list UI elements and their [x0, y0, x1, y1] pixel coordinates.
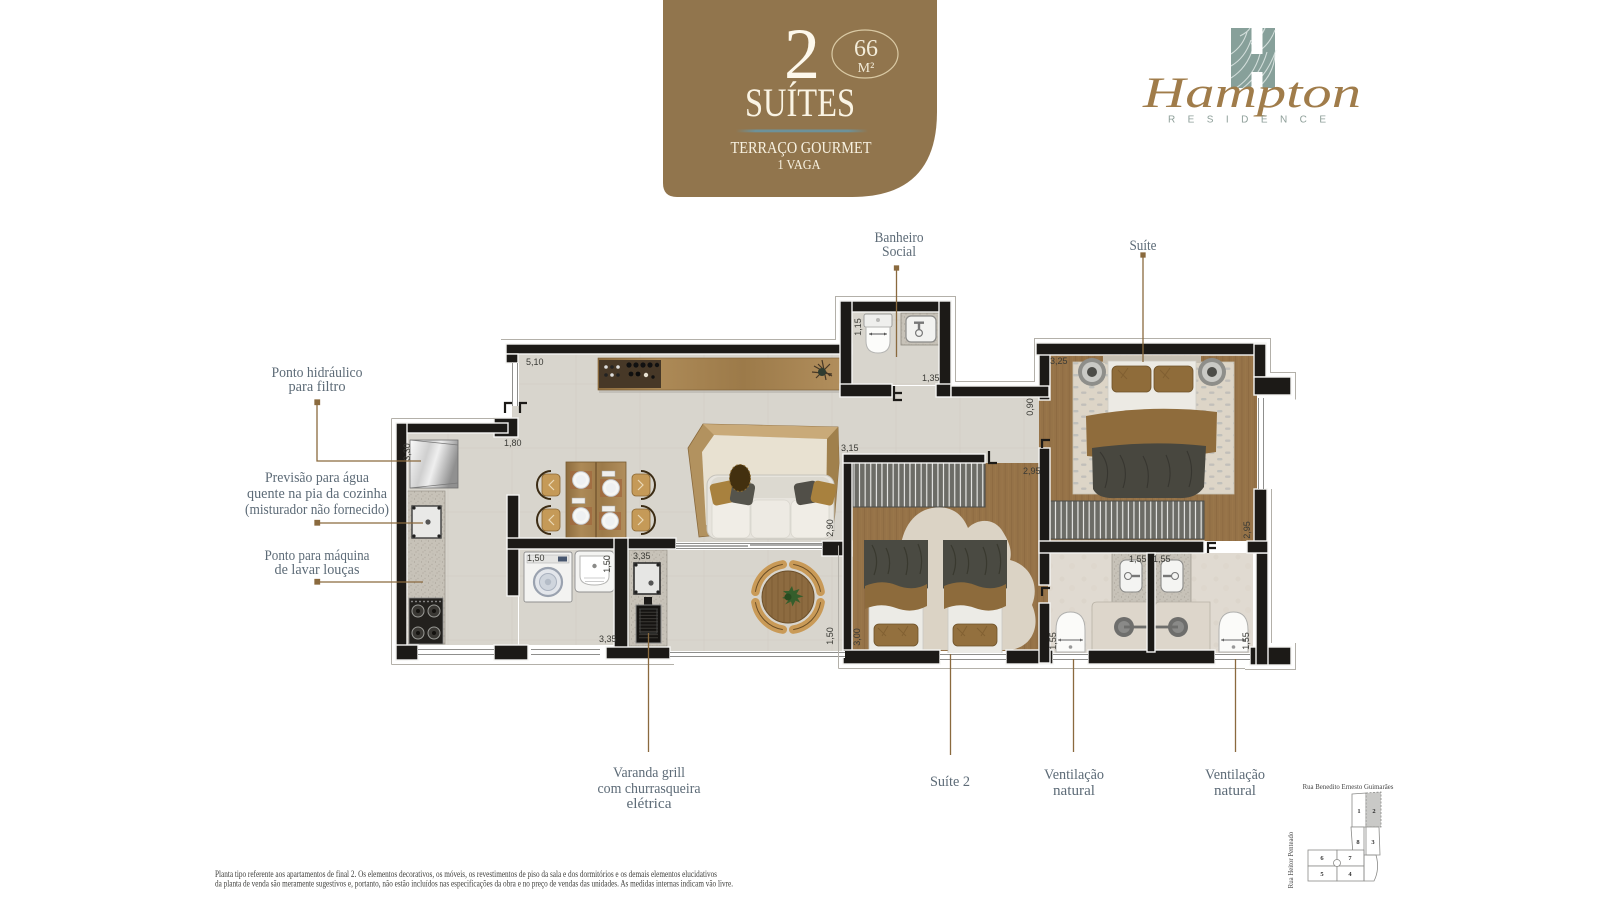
svg-text:1,55: 1,55	[1129, 554, 1147, 564]
svg-text:1,55: 1,55	[1048, 632, 1058, 650]
svg-text:natural: natural	[1053, 783, 1095, 799]
svg-text:2: 2	[1372, 808, 1375, 815]
svg-text:Suíte: Suíte	[1130, 238, 1157, 254]
svg-text:elétrica: elétrica	[627, 796, 672, 812]
svg-text:3,35: 3,35	[633, 551, 651, 561]
svg-text:2,90: 2,90	[825, 519, 835, 537]
svg-text:2,95: 2,95	[1242, 521, 1252, 539]
svg-text:2,95: 2,95	[1023, 466, 1041, 476]
svg-text:3,15: 3,15	[841, 443, 859, 453]
svg-text:Social: Social	[882, 244, 916, 260]
svg-text:1,50: 1,50	[602, 555, 612, 573]
svg-text:SUÍTES: SUÍTES	[745, 80, 855, 125]
svg-text:3,25: 3,25	[1050, 356, 1068, 366]
svg-text:0,90: 0,90	[1025, 398, 1035, 416]
svg-text:(misturador não fornecido): (misturador não fornecido)	[245, 502, 389, 518]
svg-text:Planta tipo referente aos apar: Planta tipo referente aos apartamentos d…	[215, 869, 717, 880]
svg-text:TERRAÇO GOURMET: TERRAÇO GOURMET	[731, 138, 873, 157]
svg-text:3,30: 3,30	[402, 443, 412, 461]
svg-text:Hampton: Hampton	[1142, 70, 1361, 117]
svg-text:1,15: 1,15	[853, 318, 863, 336]
svg-text:Varanda grill: Varanda grill	[613, 765, 685, 781]
svg-text:Rua Benedito Ernesto Guimarães: Rua Benedito Ernesto Guimarães	[1303, 784, 1394, 791]
svg-text:RESIDENCE: RESIDENCE	[1168, 115, 1326, 126]
svg-text:1,50: 1,50	[825, 627, 835, 645]
svg-text:1,55: 1,55	[1153, 554, 1171, 564]
svg-text:1,35: 1,35	[922, 373, 940, 383]
svg-text:quente na pia da cozinha: quente na pia da cozinha	[247, 486, 387, 502]
svg-text:5,10: 5,10	[526, 357, 544, 367]
svg-text:1 VAGA: 1 VAGA	[778, 157, 821, 172]
svg-text:Suíte 2: Suíte 2	[930, 774, 970, 790]
svg-text:M²: M²	[858, 61, 875, 76]
svg-text:Previsão para água: Previsão para água	[265, 470, 369, 486]
svg-text:3,35: 3,35	[599, 634, 617, 644]
svg-text:1,50: 1,50	[527, 553, 545, 563]
svg-text:1,80: 1,80	[504, 438, 522, 448]
svg-text:de lavar louças: de lavar louças	[275, 562, 360, 578]
svg-text:Rua Heitor Penteado: Rua Heitor Penteado	[1288, 831, 1295, 888]
svg-text:Ventilação: Ventilação	[1205, 767, 1265, 783]
svg-text:3,00: 3,00	[852, 628, 862, 646]
svg-text:66: 66	[854, 36, 878, 62]
svg-text:Ventilação: Ventilação	[1044, 767, 1104, 783]
svg-text:natural: natural	[1214, 783, 1256, 799]
svg-text:1: 1	[1357, 808, 1360, 815]
svg-text:com churrasqueira: com churrasqueira	[598, 781, 701, 797]
svg-text:1,55: 1,55	[1241, 632, 1251, 650]
svg-text:para filtro: para filtro	[289, 379, 346, 395]
svg-text:da planta de venda são meramen: da planta de venda são meramente sugesti…	[215, 879, 733, 890]
